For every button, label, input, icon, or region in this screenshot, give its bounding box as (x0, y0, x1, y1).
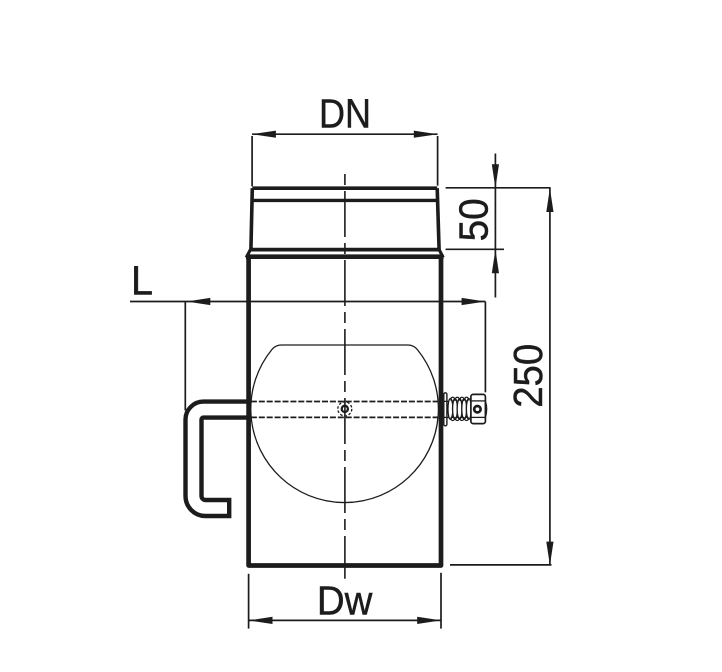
svg-text:250: 250 (505, 344, 551, 408)
svg-text:50: 50 (451, 198, 497, 241)
svg-text:L: L (131, 258, 153, 304)
svg-text:DN: DN (319, 91, 371, 137)
svg-text:Dw: Dw (317, 577, 373, 623)
